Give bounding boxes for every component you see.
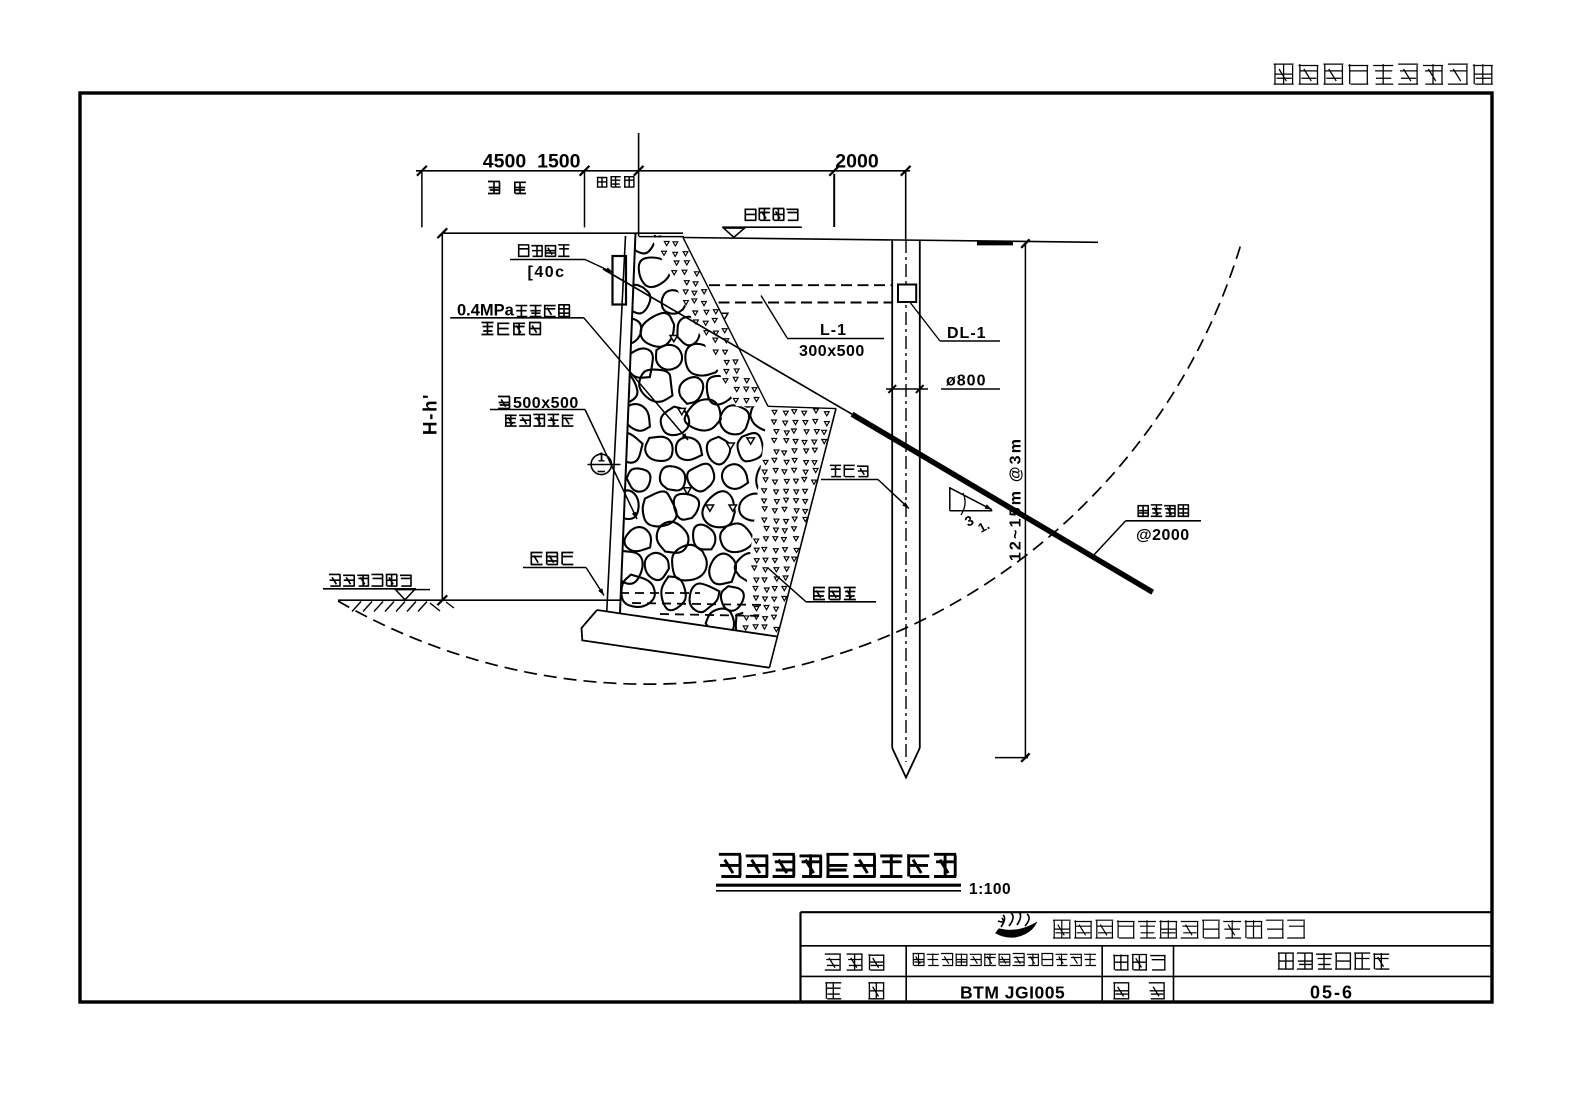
svg-text:1: 1 xyxy=(598,450,605,465)
svg-text:12~15m @3m: 12~15m @3m xyxy=(1008,437,1025,561)
svg-text:2000: 2000 xyxy=(835,151,879,173)
svg-text:DL-1: DL-1 xyxy=(947,325,987,342)
svg-text:05-6: 05-6 xyxy=(1310,983,1354,1003)
svg-text:BTM JGI005: BTM JGI005 xyxy=(960,983,1065,1003)
svg-text:L-1: L-1 xyxy=(820,322,847,339)
svg-text:[40c: [40c xyxy=(528,264,566,281)
svg-text:4500: 4500 xyxy=(483,151,527,173)
svg-text:0.4MPa: 0.4MPa xyxy=(457,302,515,320)
svg-text:@2000: @2000 xyxy=(1136,527,1190,544)
svg-text:H-h': H-h' xyxy=(421,393,442,435)
svg-text:1500: 1500 xyxy=(537,151,581,173)
svg-text:300x500: 300x500 xyxy=(799,343,865,360)
svg-text:1:100: 1:100 xyxy=(969,881,1011,898)
svg-text:ø800: ø800 xyxy=(946,373,986,390)
